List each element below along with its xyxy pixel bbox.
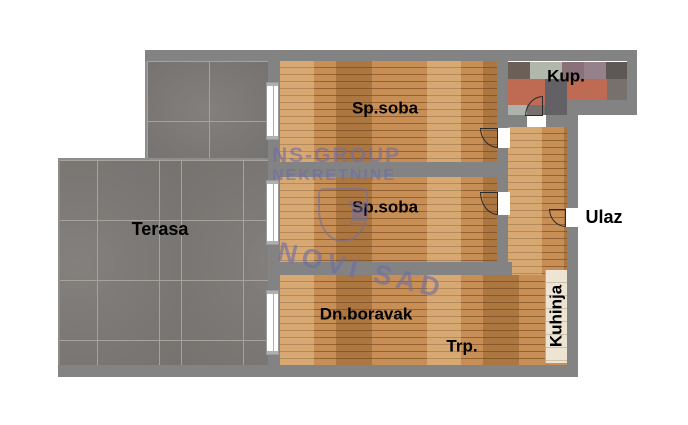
bathroom-tile: [508, 62, 530, 79]
terrace-floor-lower: [58, 158, 268, 365]
bedrooms-divider-wall: [280, 162, 508, 177]
bathroom-bottom-right-wall: [567, 100, 637, 115]
watermark-shield: ♜: [318, 188, 368, 242]
top-wall: [145, 50, 637, 61]
label-kupatilo: Kup.: [547, 68, 585, 85]
bedroom-1-window-icon: [266, 82, 279, 140]
floor-plan: Terasa Sp.soba Sp.soba Dn.boravak Trp. K…: [0, 0, 688, 425]
entrance-door-opening: [566, 208, 580, 227]
label-trpezarija: Trp.: [446, 338, 477, 355]
bathroom-door-opening: [527, 115, 546, 127]
bedroom-1-door-opening: [497, 128, 510, 148]
right-wall: [567, 100, 578, 377]
bathroom-tile: [584, 62, 606, 79]
label-dn-boravak: Dn.boravak: [320, 306, 413, 323]
bathroom-tile: [607, 79, 627, 100]
label-terasa: Terasa: [132, 220, 189, 238]
bottom-wall: [58, 365, 578, 377]
label-kuhinja: Kuhinja: [548, 285, 565, 347]
living-room-top-wall: [280, 262, 512, 275]
label-ulaz: Ulaz: [585, 208, 622, 226]
bedroom-2-door-opening: [497, 192, 510, 215]
bathroom-tile: [606, 62, 627, 79]
terrace-floor-upper: [145, 61, 268, 160]
living-room-window-icon: [266, 290, 279, 355]
bedroom-2-window-icon: [266, 180, 279, 245]
watermark-castle-icon: ♜: [343, 190, 373, 240]
bedroom-2-floor: [280, 177, 497, 262]
label-sp-soba-1: Sp.soba: [352, 100, 418, 117]
